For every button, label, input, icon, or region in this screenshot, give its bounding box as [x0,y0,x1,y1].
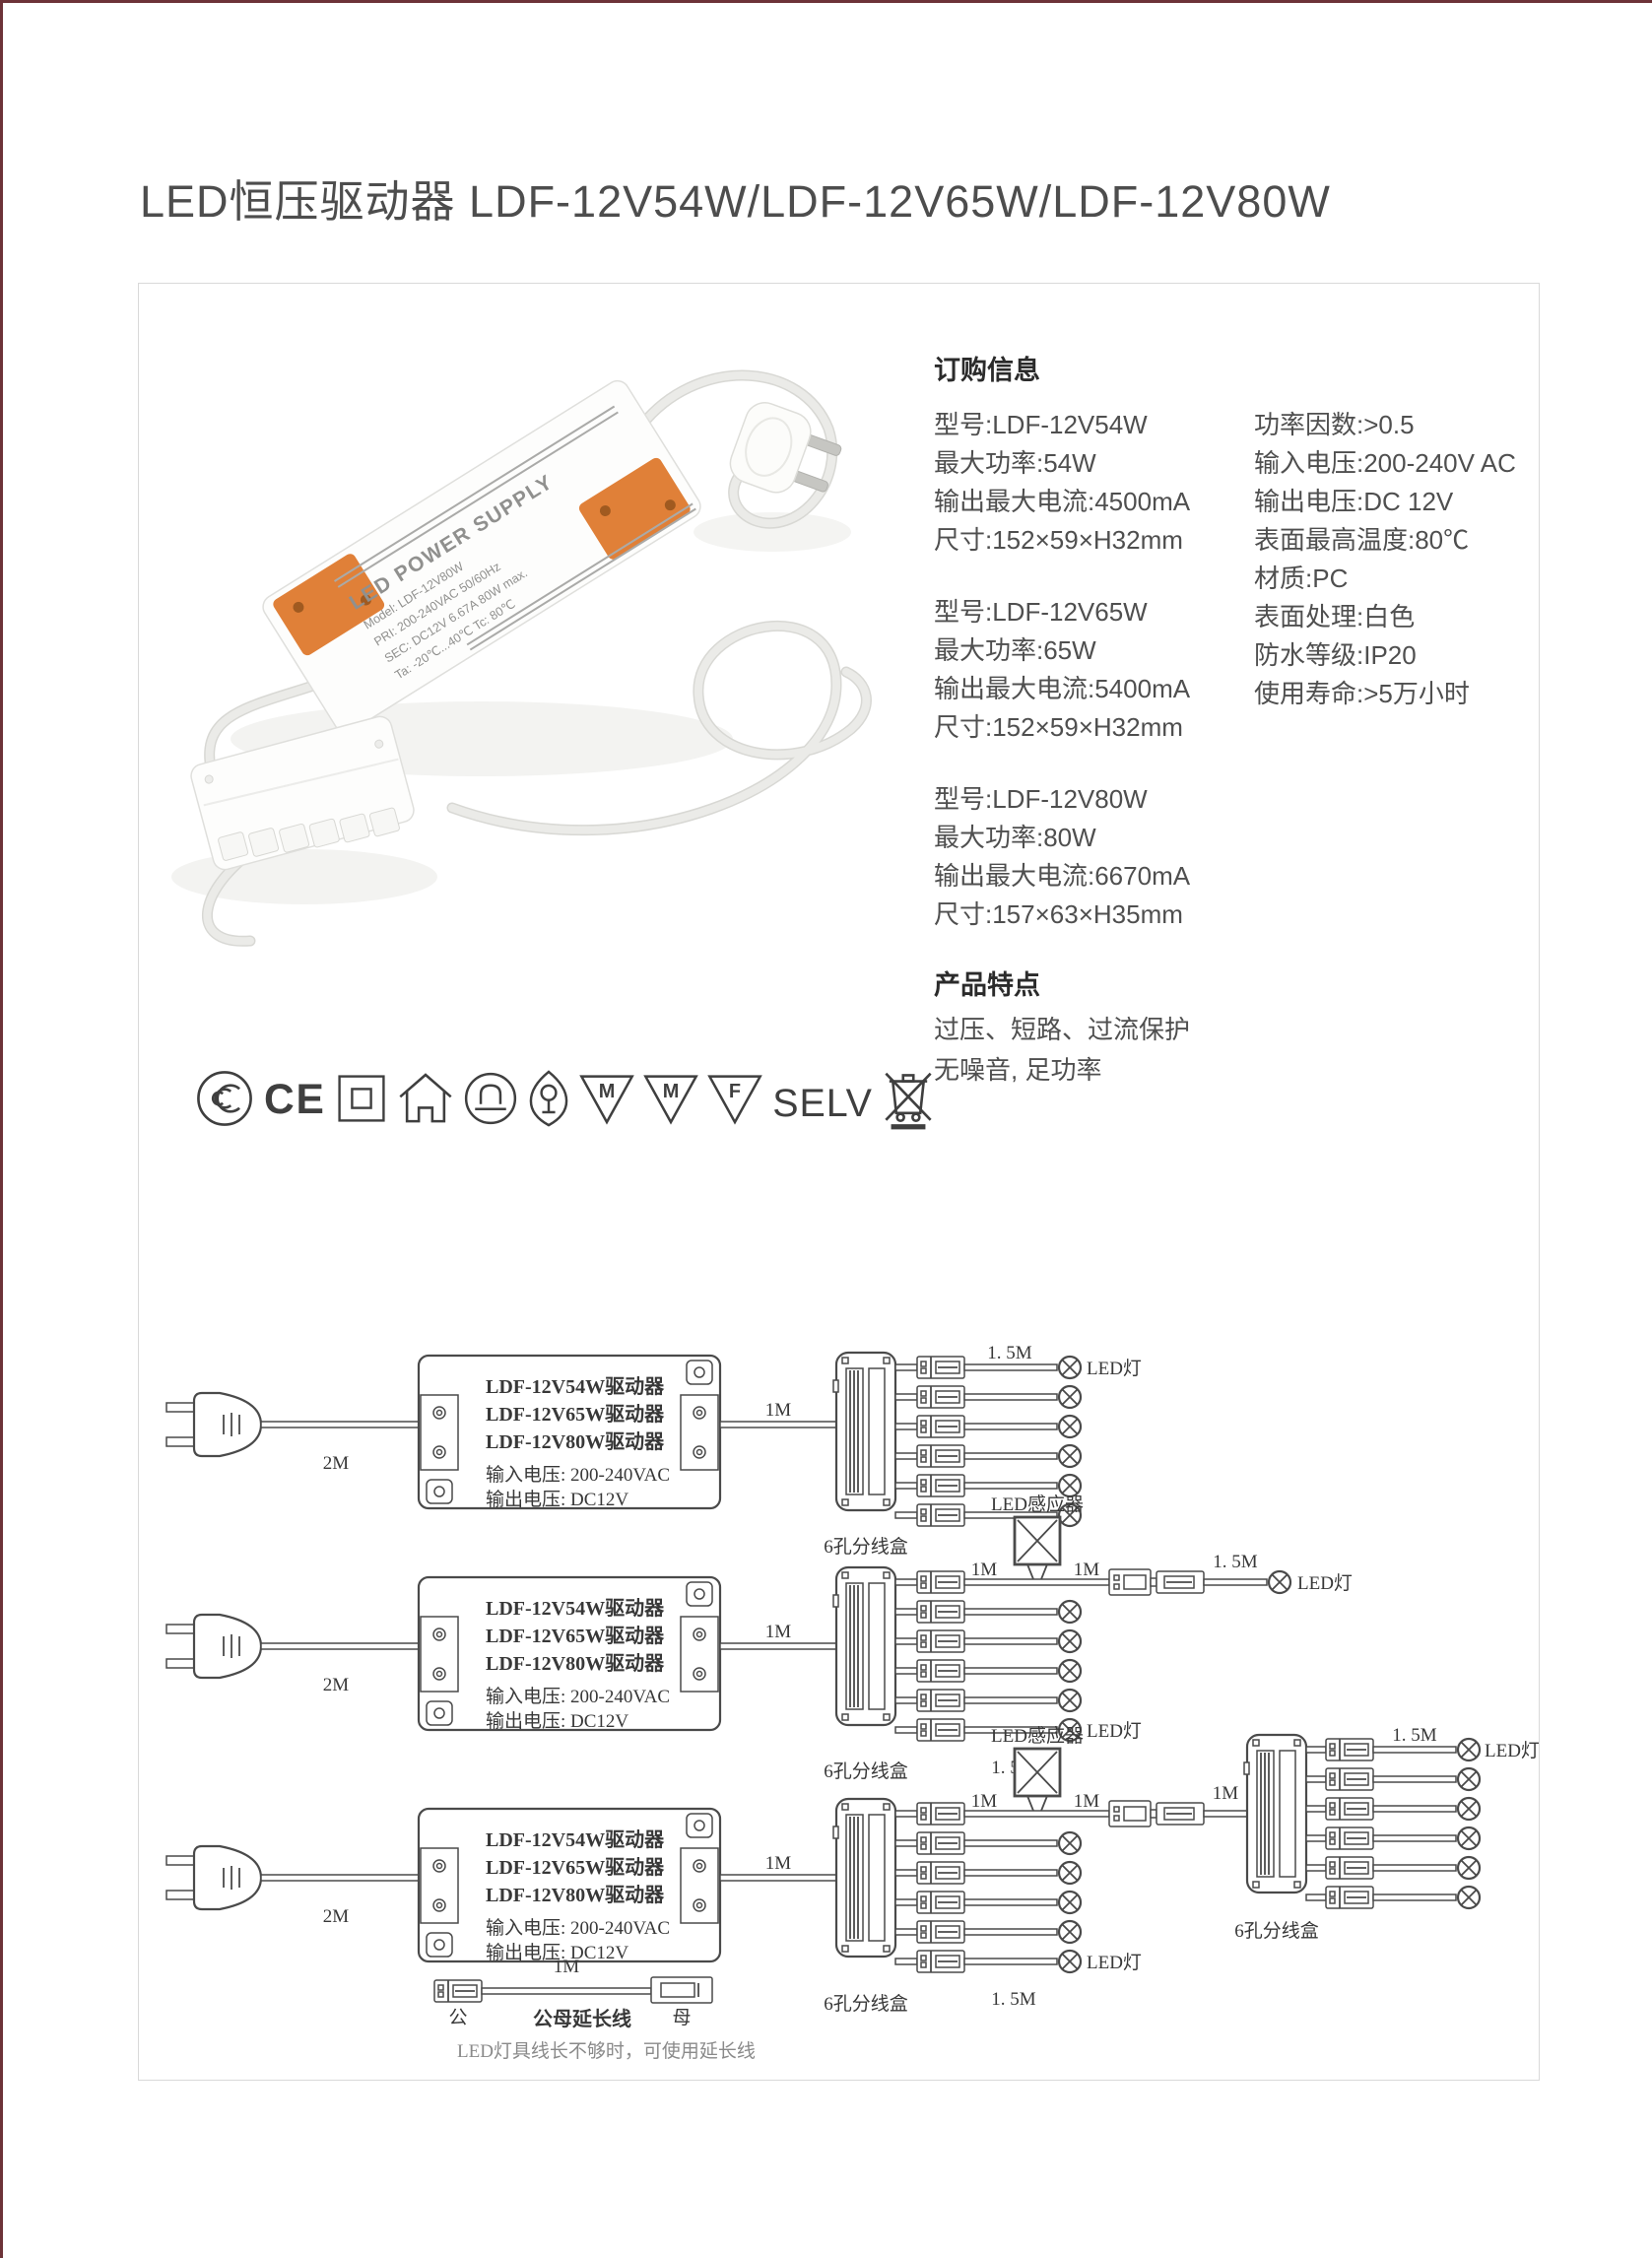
spec-line: 表面最高温度:80℃ [1254,521,1516,560]
extension-label: 公母延长线 [533,2007,631,2030]
driver-text: LDF-12V80W驱动器 [486,1652,665,1675]
sensor-label: LED感应器 [991,1494,1084,1515]
spec-line: 输出电压:DC 12V [1254,483,1516,521]
length-label: 1M [1074,1560,1100,1580]
selv-label: SELV [772,1082,873,1125]
spec-column-left: 型号:LDF-12V54W 最大功率:54W 输出最大电流:4500mA 尺寸:… [934,406,1190,934]
led-label: LED灯 [1087,1720,1142,1742]
spec-column-right: 功率因数:>0.5 输入电压:200-240V AC 输出电压:DC 12V 表… [1254,406,1516,713]
length-label: 1. 5M [987,1343,1032,1363]
led-label: LED灯 [1485,1740,1539,1761]
spec-line: 尺寸:152×59×H32mm [934,521,1190,560]
class2-icon [334,1068,389,1129]
splitter-label: 6孔分线盒 [1234,1920,1319,1942]
length-label: 2M [323,1906,350,1927]
length-label: 1M [765,1622,792,1642]
driver-text: LDF-12V54W驱动器 [486,1375,665,1398]
weee-icon [880,1065,937,1132]
driver-text: LDF-12V65W驱动器 [486,1625,665,1647]
length-label: 1M [1074,1791,1100,1812]
spec-line: 使用寿命:>5万小时 [1254,675,1516,713]
spec-line: 型号:LDF-12V54W [934,406,1190,444]
spec-line: 最大功率:80W [934,819,1190,857]
product-photo-illustration: LED POWER SUPPLY Model: LDF-12V80W PRI: … [157,296,935,985]
left-accent-line [0,0,3,2258]
driver-text: 输入电压: 200-240VAC [486,1686,670,1707]
splitter-label: 6孔分线盒 [824,1536,908,1558]
diagram-row-1: 2M LDF-12V54W驱动器 LDF-12V65W驱动器 LDF-12V80… [166,1343,1142,1558]
triangle-f-label: F [729,1081,741,1102]
led-label: LED灯 [1087,1952,1142,1973]
driver-text: LDF-12V65W驱动器 [486,1856,665,1879]
splitter2-outputs [1306,1739,1480,1908]
datasheet-page: LED恒压驱动器 LDF-12V54W/LDF-12V65W/LDF-12V80… [0,0,1652,2258]
spec-line: 表面处理:白色 [1254,598,1516,636]
spec-line: 输出最大电流:4500mA [934,483,1190,521]
length-label: 1M [765,1853,792,1874]
driver-text: 输入电压: 200-240VAC [486,1917,670,1939]
length-label: 2M [323,1675,350,1695]
triangle-m-icon: M [578,1070,635,1127]
driver-text: LDF-12V54W驱动器 [486,1597,665,1620]
length-label: 1M [971,1791,998,1812]
spec-line: 尺寸:152×59×H32mm [934,708,1190,747]
sensor-label: LED感应器 [991,1725,1084,1747]
length-label: 2M [323,1453,350,1474]
page-title: LED恒压驱动器 LDF-12V54W/LDF-12V65W/LDF-12V80… [140,166,1331,230]
length-label: 1. 5M [991,1989,1036,2010]
indoor-use-icon [396,1068,455,1129]
spec-line: 输出最大电流:6670mA [934,857,1190,896]
spec-line: 防水等级:IP20 [1254,636,1516,675]
ccc-icon [194,1068,255,1129]
spec-line: 材质:PC [1254,560,1516,598]
driver-text: LDF-12V65W驱动器 [486,1403,665,1426]
splitter-outputs [895,1601,1081,1741]
extension-cable-diagram: 1M 公 公母延长线 母 [434,1957,712,2030]
spec-line: 型号:LDF-12V80W [934,780,1190,819]
driver-text: LDF-12V80W驱动器 [486,1884,665,1906]
length-label: 1M [765,1400,792,1421]
driver-text: 输出电压: DC12V [486,1489,628,1510]
features-list: 过压、短路、过流保护 无噪音, 足功率 [934,1010,1190,1091]
triangle-m2-icon: M [642,1070,699,1127]
top-accent-line [0,0,1652,3]
diagram-note: LED灯具线长不够时，可使用延长线 [457,2040,756,2062]
driver-text: LDF-12V80W驱动器 [486,1430,665,1453]
length-label: 1. 5M [1392,1725,1437,1746]
male-label: 公 [448,2008,467,2028]
spec-line: 最大功率:65W [934,631,1190,670]
length-label: 1M [554,1957,580,1977]
driver-device: LED POWER SUPPLY Model: LDF-12V80W PRI: … [259,376,705,737]
length-label: 1. 5M [1213,1552,1258,1572]
content-box: LED POWER SUPPLY Model: LDF-12V80W PRI: … [138,283,1540,2081]
splitter-label: 6孔分线盒 [824,1760,908,1782]
triangle-m2-label: M [663,1081,680,1102]
led-label: LED灯 [1297,1572,1353,1594]
certification-row: CE M [194,1059,937,1138]
driver-text: LDF-12V54W驱动器 [486,1828,665,1851]
led-label: LED灯 [1087,1358,1142,1379]
spec-line: 最大功率:54W [934,444,1190,483]
feature-line: 无噪音, 足功率 [934,1050,1190,1091]
ce-icon: CE [262,1068,327,1129]
splitter-label: 6孔分线盒 [824,1993,908,2015]
product-photo: LED POWER SUPPLY Model: LDF-12V80W PRI: … [157,296,935,990]
female-label: 母 [672,2008,691,2028]
ce-label: CE [264,1077,326,1123]
selv-mark: SELV [770,1068,873,1129]
length-label: 1M [971,1560,998,1580]
splitter-outputs [895,1832,1081,1972]
ordering-heading: 订购信息 [934,349,1040,387]
triangle-m-label: M [599,1081,616,1102]
driver-text: 输出电压: DC12V [486,1710,628,1732]
feature-line: 过压、短路、过流保护 [934,1010,1190,1050]
features-heading: 产品特点 [934,963,1040,1002]
spec-line: 输出最大电流:5400mA [934,670,1190,708]
independent-ballast-icon [462,1068,519,1129]
spec-line: 尺寸:157×63×H35mm [934,896,1190,934]
oval-mark-icon [526,1067,571,1130]
diagram-row-2: 2M LDF-12V54W驱动器 LDF-12V65W驱动器 LDF-12V80… [166,1494,1353,1782]
spec-line: 型号:LDF-12V65W [934,593,1190,631]
length-label: 1M [1213,1783,1239,1804]
triangle-f-icon: F [706,1070,763,1127]
wiring-diagrams: 2M LDF-12V54W驱动器 LDF-12V65W驱动器 LDF-12V80… [139,1318,1539,2085]
eu-plug [725,397,848,509]
wiring-diagram-svg: 2M LDF-12V54W驱动器 LDF-12V65W驱动器 LDF-12V80… [139,1318,1539,2080]
spec-line: 输入电压:200-240V AC [1254,444,1516,483]
driver-text: 输入电压: 200-240VAC [486,1464,670,1486]
spec-line: 功率因数:>0.5 [1254,406,1516,444]
